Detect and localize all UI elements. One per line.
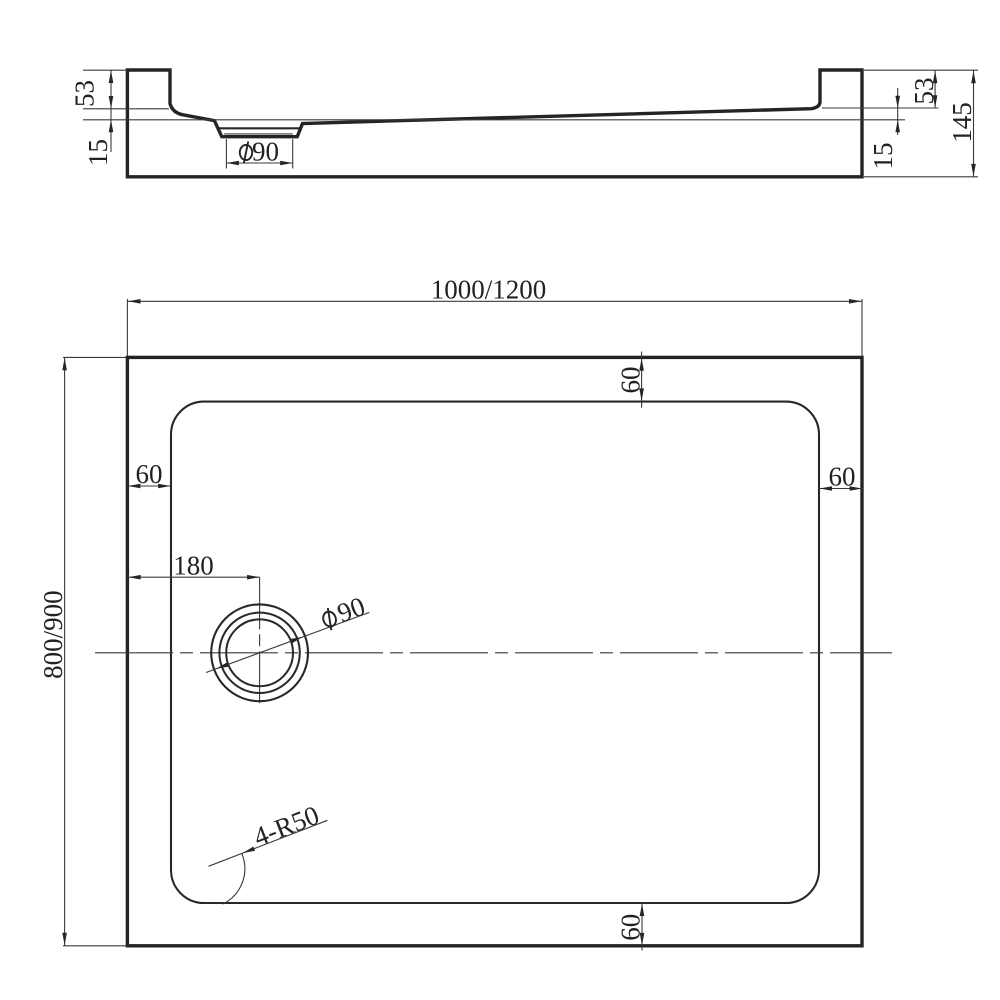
svg-text:53: 53 [69, 80, 99, 107]
svg-text:800/900: 800/900 [38, 590, 68, 679]
svg-text:1000/1200: 1000/1200 [431, 275, 547, 305]
svg-text:15: 15 [83, 139, 113, 166]
svg-text:15: 15 [868, 143, 898, 170]
svg-text:180: 180 [173, 551, 214, 581]
svg-text:53: 53 [909, 78, 939, 105]
svg-text:60: 60 [616, 367, 646, 394]
svg-text:60: 60 [136, 459, 163, 489]
svg-text:90: 90 [252, 137, 279, 167]
svg-text:60: 60 [829, 462, 856, 492]
svg-text:60: 60 [616, 914, 646, 941]
svg-text:145: 145 [947, 102, 977, 143]
